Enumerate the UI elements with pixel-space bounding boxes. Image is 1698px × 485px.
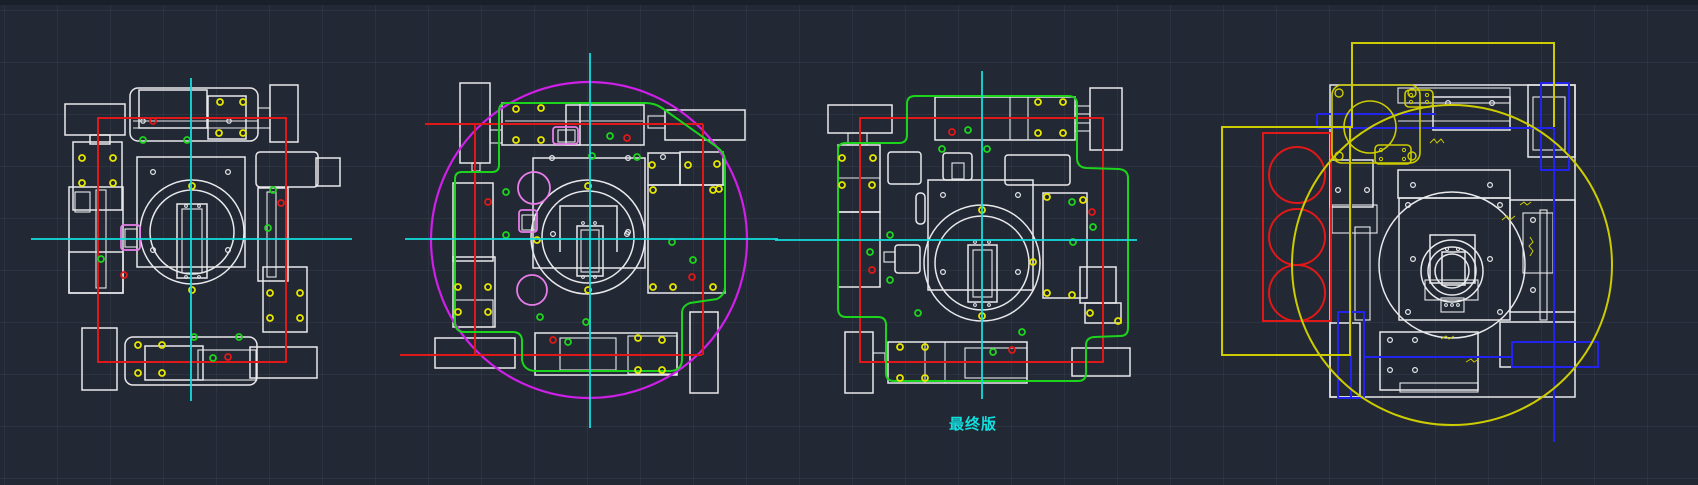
- drawing-view-3[interactable]: [775, 71, 1137, 399]
- version-label[interactable]: 最终版: [949, 413, 997, 434]
- drawing-view-1[interactable]: [31, 78, 352, 401]
- drawing-view-4[interactable]: [1222, 43, 1612, 442]
- drawing-view-2[interactable]: [400, 53, 778, 428]
- cad-canvas[interactable]: [0, 0, 1698, 485]
- cad-viewport[interactable]: 最终版: [0, 0, 1698, 485]
